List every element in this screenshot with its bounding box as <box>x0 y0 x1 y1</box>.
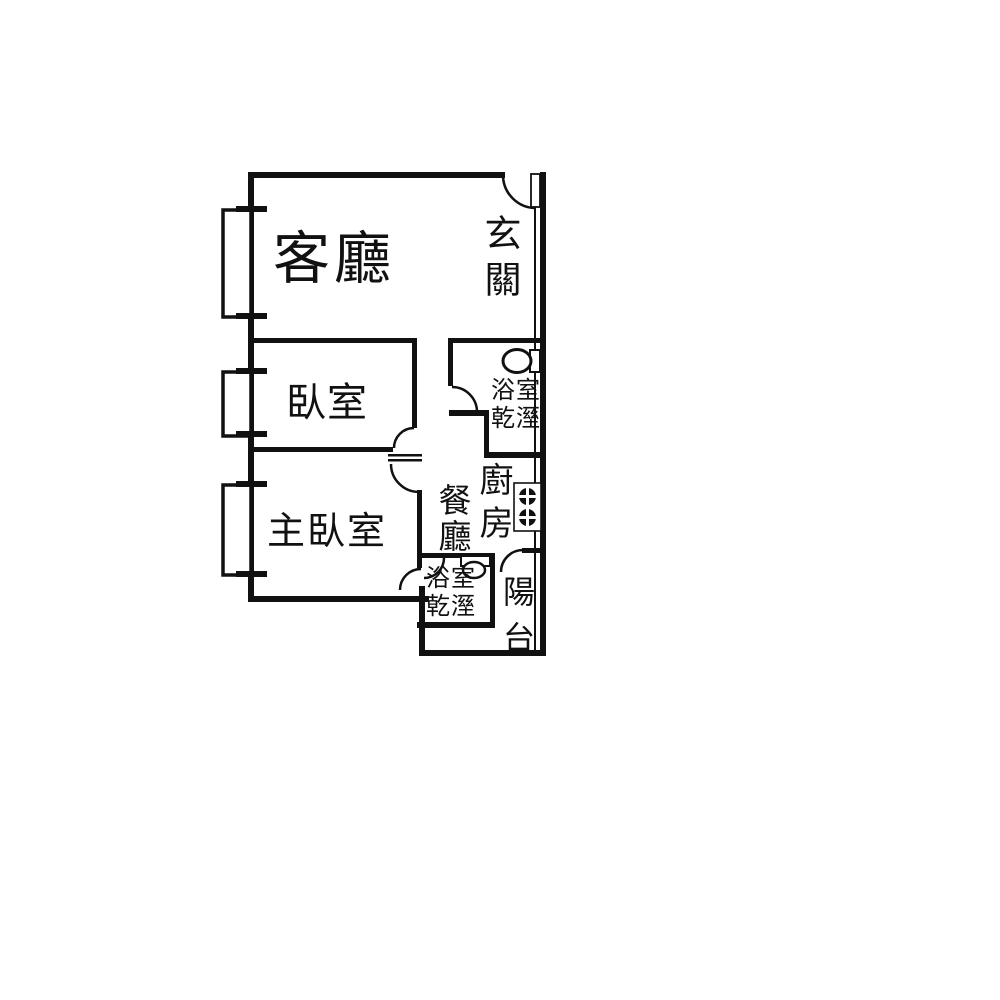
living-room-label: 客廳 <box>273 231 395 288</box>
wall-bath-upper-bottom <box>484 452 541 458</box>
sliding-door-line-1 <box>388 454 422 457</box>
dining-room-label: 餐廳 <box>436 483 469 555</box>
stove-two-burner-icon <box>514 483 541 531</box>
window-bedroom <box>223 368 267 437</box>
window-living <box>223 206 267 319</box>
wall-master-bottom <box>248 596 429 602</box>
balcony-label: 陽台 <box>501 575 533 667</box>
windows <box>223 206 267 577</box>
wall-bath-lower-bottom <box>417 622 495 628</box>
entry-door-leaf <box>531 174 540 207</box>
wall-bath-upper-left <box>448 338 453 386</box>
window-master <box>223 481 267 577</box>
balcony-door-arc <box>501 550 523 572</box>
wall-bath-upper-top <box>448 338 541 343</box>
wall-bedroom-bottom <box>248 447 393 452</box>
dining-door-arc <box>391 464 419 492</box>
sliding-door-line-2 <box>388 459 422 462</box>
kitchen-label: 廚房 <box>476 462 510 548</box>
floor-plan: 客廳 玄關 臥室 主臥室 餐廳 廚房 浴室乾溼 浴室乾溼 陽台 <box>0 0 1000 1000</box>
bathroom-upper-label: 浴室乾溼 <box>490 377 542 434</box>
entryway-label: 玄關 <box>481 214 518 306</box>
wall-bath-upper-door-stub <box>449 410 489 416</box>
wall-bedroom-top <box>248 338 417 343</box>
wall-top <box>248 172 505 178</box>
bedroom-door-arc <box>394 428 414 448</box>
master-bedroom-label: 主臥室 <box>267 513 387 551</box>
bath-upper-door-arc <box>452 387 477 412</box>
bedroom-label: 臥室 <box>286 383 368 423</box>
toilet-icon <box>503 350 540 373</box>
master-door-arc <box>400 569 421 590</box>
wall-balcony-door-stub <box>522 548 541 553</box>
bathroom-lower-label: 浴室乾溼 <box>425 565 477 620</box>
wall-bedroom-right <box>412 338 417 428</box>
wall-bath-upper-inner-vertical <box>484 412 489 458</box>
